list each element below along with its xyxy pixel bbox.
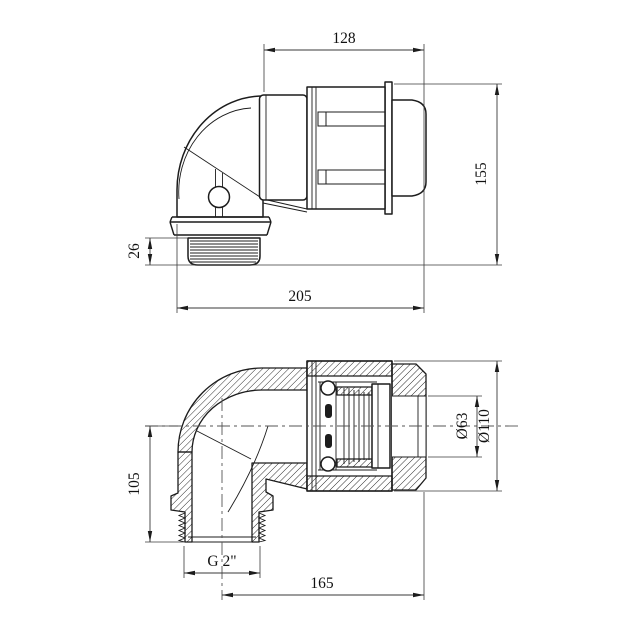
drawing-svg: 128 155 26 205	[0, 0, 630, 630]
cap-mouth	[392, 396, 426, 457]
grip-ring-section-top	[321, 381, 335, 395]
nut-shoulder-bottom	[337, 459, 372, 467]
dim-length-label: 165	[310, 575, 334, 592]
nut-flange	[385, 82, 392, 214]
dim-pipe-diameter: Ø63	[428, 396, 482, 457]
dim-axis-height: 105	[126, 426, 185, 542]
dim-overall-width-label: 205	[288, 288, 312, 305]
external-view	[170, 82, 426, 265]
section-leg-right-wall	[252, 463, 307, 542]
section-elbow-arc-wall	[178, 368, 307, 452]
nut-top-wall	[307, 361, 392, 376]
dim-thread-length: 26	[126, 238, 188, 265]
dim-thread-size-label: G 2"	[207, 553, 236, 570]
nut-shoulder-top	[337, 387, 372, 395]
section-view	[145, 361, 520, 600]
dim-body-diameter-label: Ø110	[476, 409, 493, 443]
bore-diagonal-line	[197, 431, 251, 459]
outlet-flange	[170, 217, 271, 235]
dim-axis-height-label: 105	[126, 472, 143, 496]
technical-drawing-canvas: 128 155 26 205	[0, 0, 630, 630]
grip-ring-slot-bottom	[325, 434, 332, 448]
dim-pipe-diameter-label: Ø63	[454, 412, 471, 439]
grip-ring-section-bottom	[321, 457, 335, 471]
section-thread-right-crest	[259, 513, 265, 542]
dim-overall-height-label: 155	[473, 162, 490, 186]
nut-body	[307, 87, 385, 209]
grip-ring-slot-top	[325, 404, 332, 418]
dim-top-width-label: 128	[332, 30, 356, 47]
end-cap	[392, 100, 426, 196]
section-end-cap	[392, 364, 426, 490]
boss-circle	[209, 187, 230, 208]
section-thread-left-crest	[179, 513, 185, 542]
dim-thread-length-label: 26	[126, 243, 143, 259]
section-leg-left-wall	[171, 452, 192, 542]
compression-nut	[307, 82, 392, 214]
nut-bottom-wall	[307, 476, 392, 491]
male-thread-external	[188, 238, 260, 265]
body-sleeve	[260, 95, 308, 200]
